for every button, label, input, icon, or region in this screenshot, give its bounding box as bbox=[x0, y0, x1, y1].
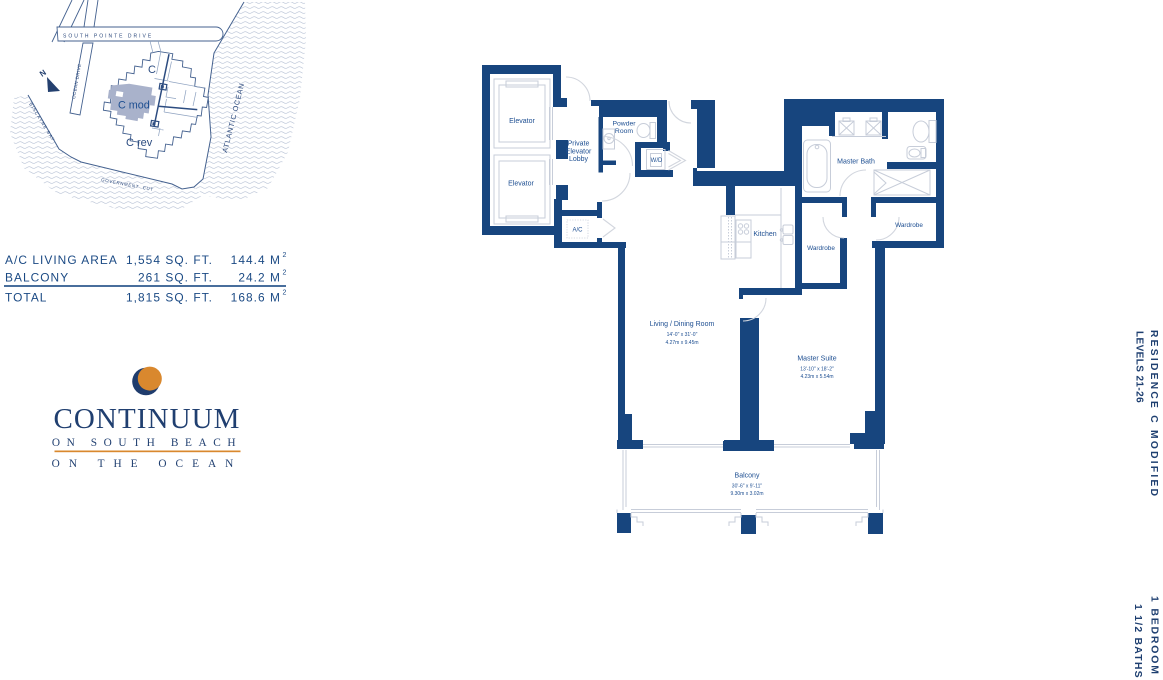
svg-text:W/D: W/D bbox=[651, 158, 663, 164]
svg-text:ON SOUTH BEACH: ON SOUTH BEACH bbox=[52, 437, 242, 449]
svg-text:Master Suite: Master Suite bbox=[797, 356, 836, 363]
svg-text:9.30m x 3.02m: 9.30m x 3.02m bbox=[730, 491, 763, 497]
svg-text:Elevator: Elevator bbox=[566, 148, 592, 155]
svg-text:RESIDENCE C MODIFIED: RESIDENCE C MODIFIED bbox=[1148, 330, 1159, 498]
svg-text:A/C LIVING AREA: A/C LIVING AREA bbox=[5, 253, 118, 267]
svg-text:Kitchen: Kitchen bbox=[753, 231, 776, 238]
svg-text:Balcony: Balcony bbox=[735, 473, 760, 480]
svg-text:13'-10" x 18'-2": 13'-10" x 18'-2" bbox=[800, 367, 834, 373]
svg-text:2: 2 bbox=[283, 290, 287, 297]
svg-text:4.27m x 9.45m: 4.27m x 9.45m bbox=[665, 340, 698, 346]
svg-text:144.4 M: 144.4 M bbox=[231, 253, 281, 267]
svg-text:Living / Dining Room: Living / Dining Room bbox=[650, 321, 715, 328]
svg-text:4.23m x 5.54m: 4.23m x 5.54m bbox=[800, 374, 833, 380]
svg-text:24.2 M: 24.2 M bbox=[238, 271, 281, 285]
svg-text:14'-0" x 31'-0": 14'-0" x 31'-0" bbox=[667, 332, 698, 338]
svg-text:Wardrobe: Wardrobe bbox=[895, 222, 923, 229]
svg-text:C mod: C mod bbox=[118, 100, 150, 112]
svg-text:30'-6" x 9'-11": 30'-6" x 9'-11" bbox=[732, 484, 763, 490]
svg-text:1 1/2 BATHS: 1 1/2 BATHS bbox=[1132, 604, 1144, 679]
svg-text:Lobby: Lobby bbox=[569, 156, 589, 163]
svg-text:TOTAL: TOTAL bbox=[5, 291, 47, 305]
svg-text:C rev: C rev bbox=[126, 137, 153, 149]
svg-text:C: C bbox=[148, 64, 156, 76]
svg-text:BALCONY: BALCONY bbox=[5, 271, 69, 285]
svg-text:SOUTH POINTE DRIVE: SOUTH POINTE DRIVE bbox=[63, 34, 153, 40]
svg-text:2: 2 bbox=[283, 270, 287, 277]
svg-text:Elevator: Elevator bbox=[509, 118, 535, 125]
svg-text:Private: Private bbox=[568, 141, 590, 148]
svg-text:ON THE OCEAN: ON THE OCEAN bbox=[52, 458, 243, 470]
svg-text:168.6 M: 168.6 M bbox=[231, 291, 281, 305]
svg-text:Elevator: Elevator bbox=[508, 181, 534, 188]
svg-text:1,815 SQ. FT.: 1,815 SQ. FT. bbox=[126, 291, 213, 305]
svg-text:1 BEDROOM: 1 BEDROOM bbox=[1149, 596, 1161, 676]
svg-text:LEVELS 21-26: LEVELS 21-26 bbox=[1134, 331, 1145, 403]
svg-text:Master Bath: Master Bath bbox=[837, 159, 875, 166]
svg-text:A/C: A/C bbox=[572, 228, 583, 234]
svg-text:CONTINUUM: CONTINUUM bbox=[53, 403, 240, 435]
svg-text:Powder: Powder bbox=[612, 121, 636, 128]
svg-text:261 SQ. FT.: 261 SQ. FT. bbox=[138, 271, 213, 285]
svg-text:Room: Room bbox=[615, 128, 633, 135]
svg-text:Wardrobe: Wardrobe bbox=[807, 245, 835, 252]
svg-text:1,554 SQ. FT.: 1,554 SQ. FT. bbox=[126, 253, 213, 267]
svg-text:2: 2 bbox=[283, 252, 287, 259]
